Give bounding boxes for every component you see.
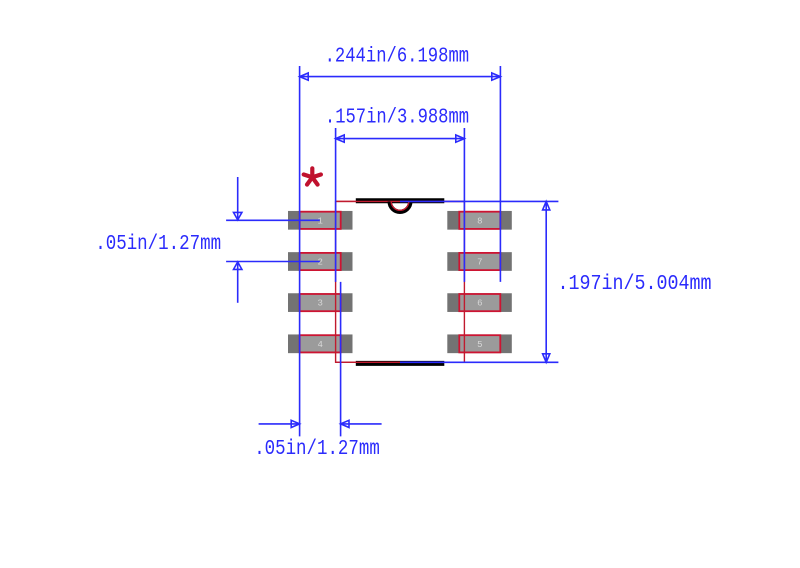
svg-text:5: 5 xyxy=(477,340,482,350)
svg-text:8: 8 xyxy=(477,216,482,226)
svg-text:4: 4 xyxy=(318,340,323,350)
svg-text:3: 3 xyxy=(318,299,323,309)
svg-text:1: 1 xyxy=(318,216,323,226)
svg-text:.05in/1.27mm: .05in/1.27mm xyxy=(254,438,380,461)
svg-text:.197in/5.004mm: .197in/5.004mm xyxy=(558,273,712,296)
svg-text:.05in/1.27mm: .05in/1.27mm xyxy=(95,233,221,256)
svg-text:7: 7 xyxy=(477,258,482,268)
svg-text:.244in/6.198mm: .244in/6.198mm xyxy=(325,46,470,69)
svg-text:.157in/3.988mm: .157in/3.988mm xyxy=(325,106,469,129)
svg-text:6: 6 xyxy=(477,299,482,309)
svg-text:2: 2 xyxy=(318,258,323,268)
